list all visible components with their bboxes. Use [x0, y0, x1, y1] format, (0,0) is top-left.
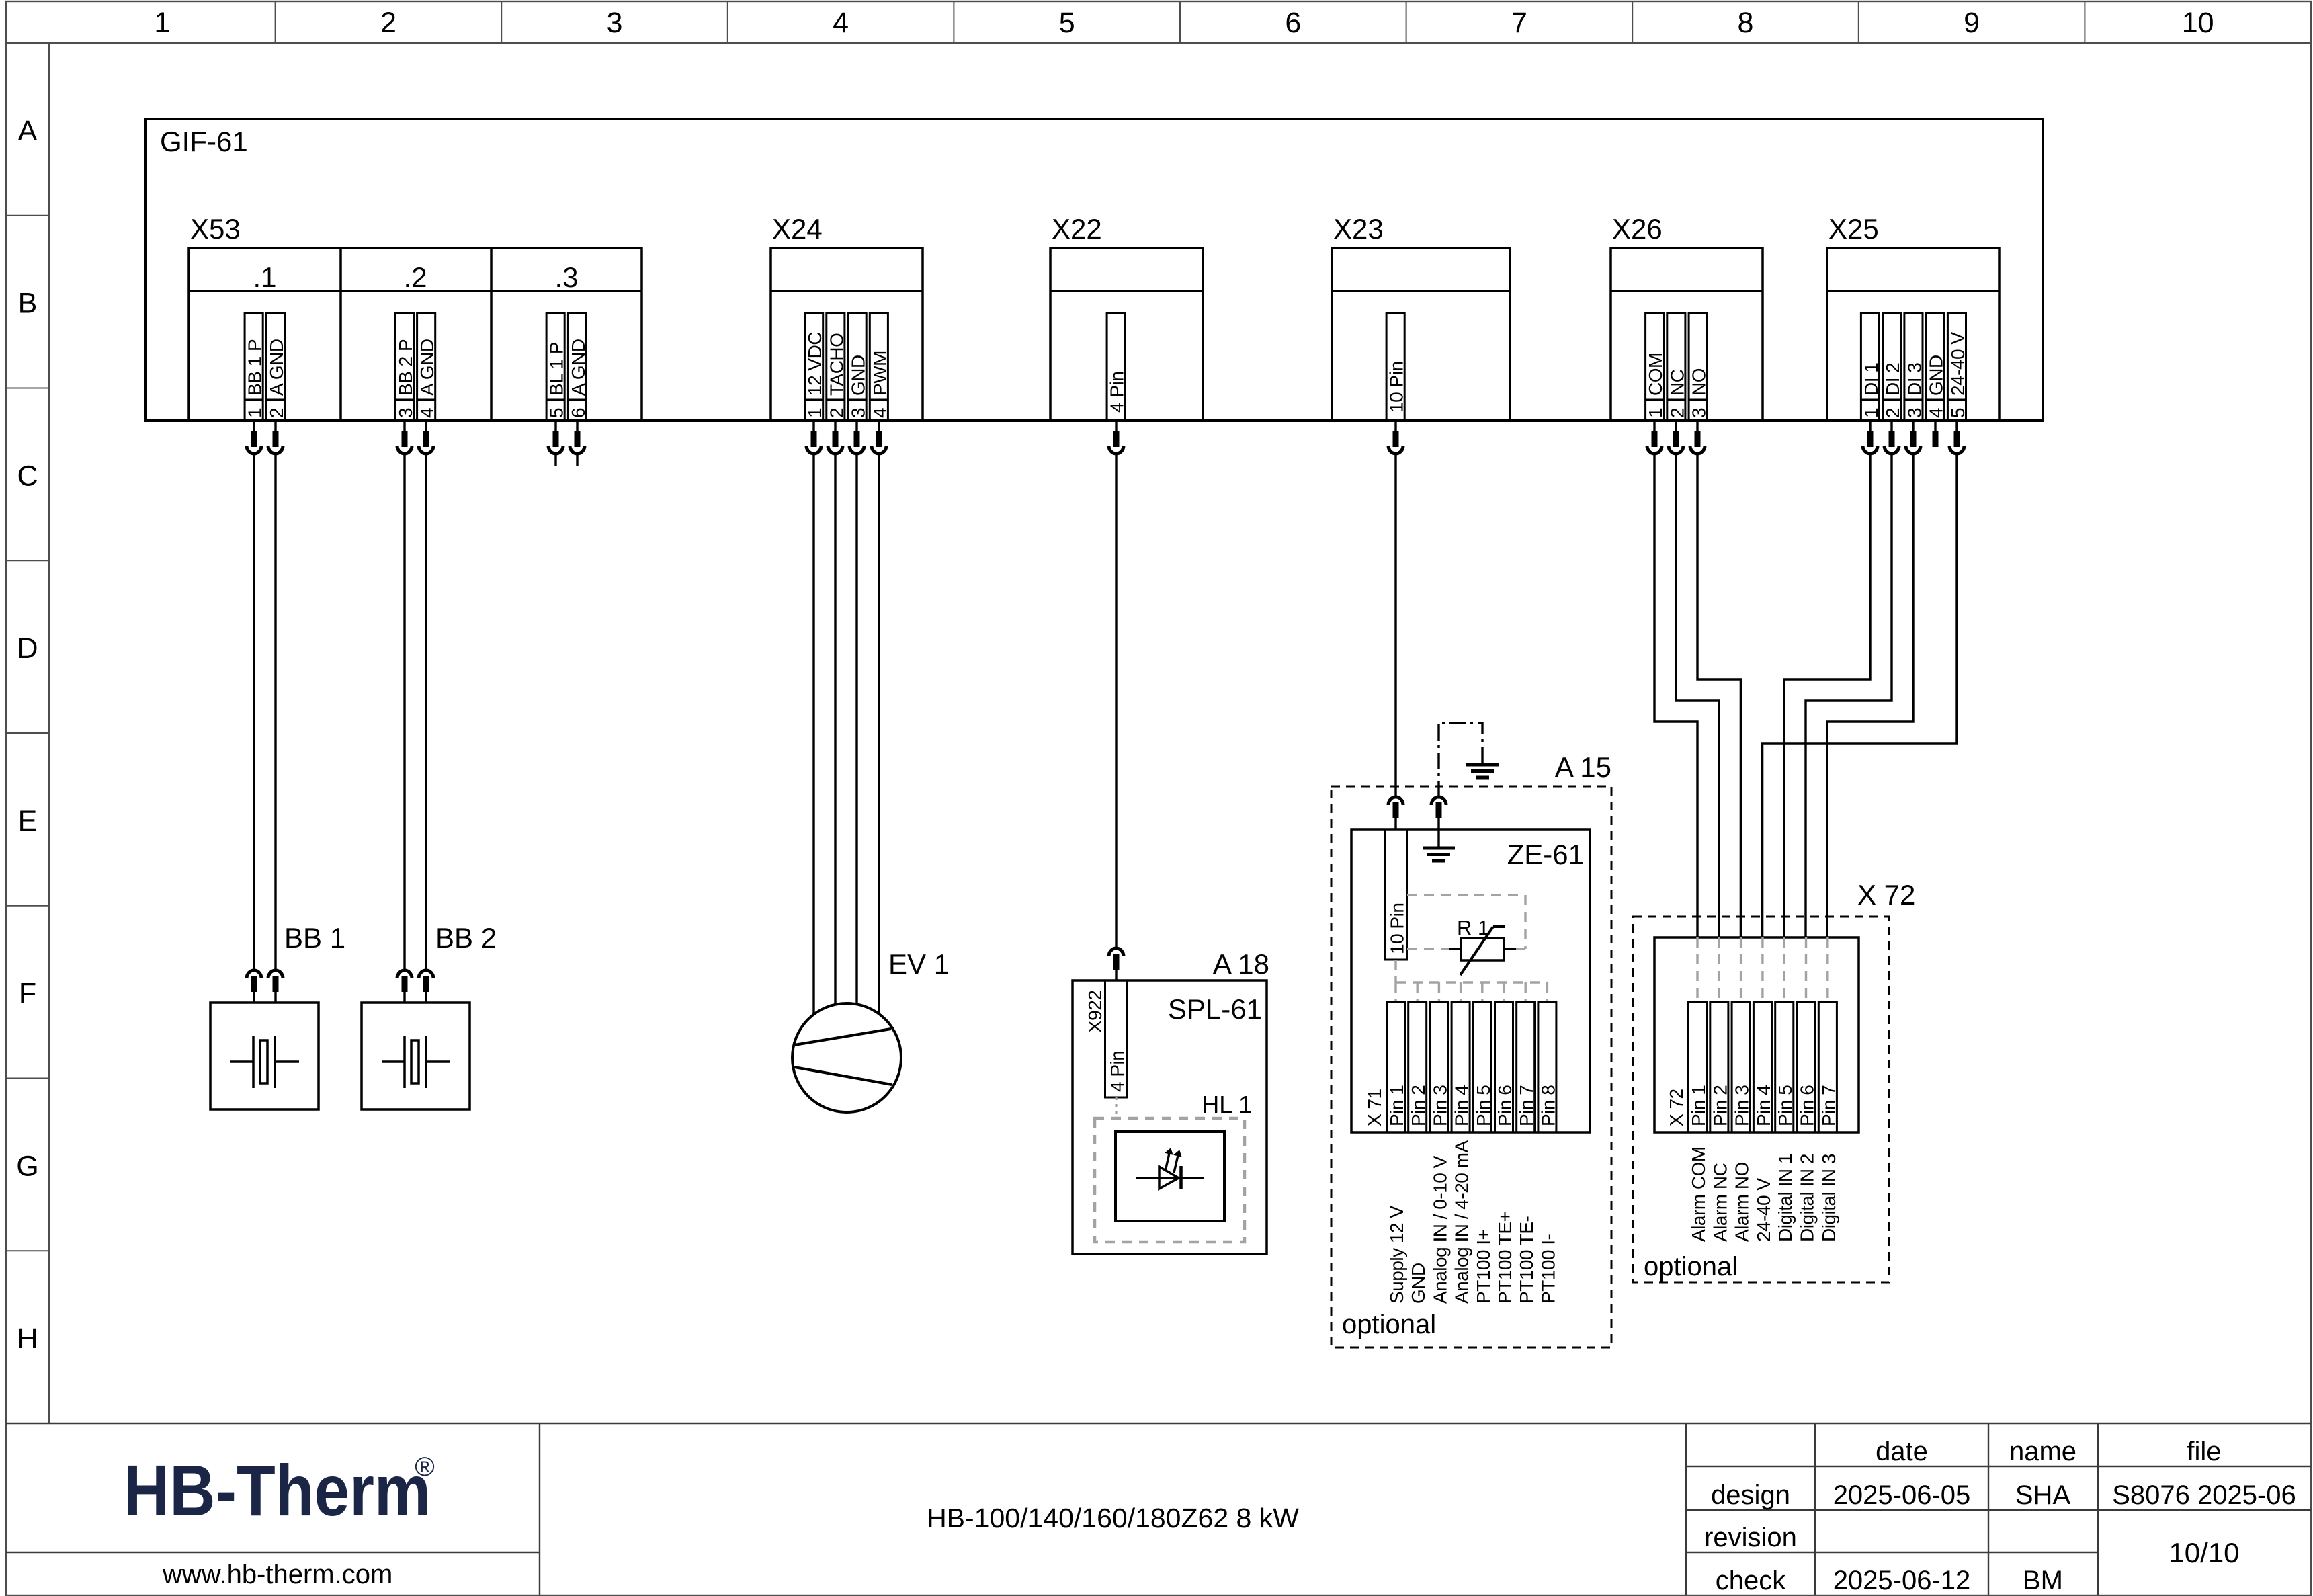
svg-text:date: date — [1876, 1437, 1928, 1466]
svg-text:check: check — [1716, 1566, 1786, 1595]
svg-text:X26: X26 — [1612, 213, 1663, 245]
svg-text:H: H — [17, 1322, 38, 1355]
svg-text:revision: revision — [1704, 1523, 1797, 1552]
svg-text:Pin 2: Pin 2 — [1710, 1085, 1730, 1126]
svg-text:PT100 I+: PT100 I+ — [1473, 1230, 1494, 1304]
svg-text:4 Pin: 4 Pin — [1107, 1051, 1128, 1092]
svg-text:BB 1 P: BB 1 P — [245, 339, 265, 396]
svg-text:design: design — [1711, 1480, 1790, 1510]
svg-text:S8076 2025-06: S8076 2025-06 — [2112, 1480, 2296, 1510]
svg-text:Alarm NO: Alarm NO — [1732, 1162, 1753, 1242]
svg-text:X 72: X 72 — [1857, 879, 1915, 911]
svg-text:GND: GND — [848, 355, 869, 396]
svg-text:5: 5 — [1059, 7, 1075, 39]
svg-text:NC: NC — [1667, 369, 1687, 396]
svg-text:F: F — [19, 978, 36, 1010]
svg-text:name: name — [2009, 1437, 2076, 1466]
svg-text:4: 4 — [870, 408, 890, 418]
svg-text:3: 3 — [848, 408, 869, 418]
svg-text:Pin 5: Pin 5 — [1775, 1085, 1796, 1126]
svg-text:4: 4 — [1926, 408, 1947, 418]
svg-text:Pin 1: Pin 1 — [1386, 1085, 1407, 1126]
svg-text:R 1: R 1 — [1457, 916, 1489, 939]
svg-text:Pin 2: Pin 2 — [1408, 1085, 1429, 1126]
svg-text:PT100 TE-: PT100 TE- — [1516, 1216, 1537, 1304]
svg-text:Pin 7: Pin 7 — [1818, 1085, 1839, 1126]
svg-text:PT100 TE+: PT100 TE+ — [1495, 1212, 1515, 1304]
svg-text:SHA: SHA — [2015, 1480, 2071, 1510]
svg-text:6: 6 — [568, 408, 589, 418]
svg-text:1: 1 — [1645, 408, 1666, 418]
svg-text:G: G — [16, 1150, 38, 1183]
svg-text:Pin 3: Pin 3 — [1732, 1085, 1753, 1126]
svg-text:Pin 7: Pin 7 — [1516, 1085, 1537, 1126]
svg-text:EV 1: EV 1 — [888, 948, 950, 980]
svg-text:Pin 8: Pin 8 — [1538, 1085, 1558, 1126]
svg-text:D: D — [17, 632, 38, 665]
svg-text:Analog IN / 0-10 V: Analog IN / 0-10 V — [1429, 1155, 1450, 1304]
svg-text:Digital IN 1: Digital IN 1 — [1775, 1154, 1796, 1242]
svg-text:optional: optional — [1644, 1252, 1738, 1282]
svg-text:2: 2 — [266, 408, 287, 418]
svg-text:Digital IN 2: Digital IN 2 — [1797, 1154, 1818, 1242]
svg-text:Pin 6: Pin 6 — [1797, 1085, 1818, 1126]
svg-text:Pin 6: Pin 6 — [1495, 1085, 1515, 1126]
svg-text:C: C — [17, 460, 38, 493]
svg-text:A 18: A 18 — [1213, 948, 1269, 980]
svg-text:X24: X24 — [772, 213, 823, 245]
svg-text:2025-06-05: 2025-06-05 — [1833, 1480, 1971, 1510]
svg-text:Supply 12 V: Supply 12 V — [1386, 1206, 1407, 1304]
svg-text:GND: GND — [1408, 1263, 1429, 1304]
svg-text:E: E — [18, 805, 38, 837]
svg-text:X 71: X 71 — [1364, 1089, 1385, 1126]
svg-text:2: 2 — [826, 408, 847, 418]
svg-text:10: 10 — [2182, 7, 2214, 39]
svg-text:Pin 4: Pin 4 — [1452, 1085, 1472, 1126]
svg-text:.3: .3 — [554, 261, 578, 293]
svg-text:2: 2 — [1667, 408, 1687, 418]
svg-text:®: ® — [415, 1452, 434, 1482]
svg-text:3: 3 — [1689, 408, 1710, 418]
svg-text:Alarm NC: Alarm NC — [1710, 1163, 1730, 1242]
svg-text:B: B — [18, 288, 38, 320]
svg-text:BB 1: BB 1 — [284, 922, 345, 954]
svg-text:24-40 V: 24-40 V — [1753, 1178, 1774, 1242]
svg-text:Alarm COM: Alarm COM — [1688, 1146, 1709, 1242]
svg-text:A: A — [18, 115, 38, 147]
svg-text:BB 2 P: BB 2 P — [395, 339, 416, 396]
svg-text:TACHO: TACHO — [826, 333, 847, 396]
svg-text:X53: X53 — [190, 213, 241, 245]
svg-text:PWM: PWM — [870, 351, 890, 396]
svg-text:GIF-61: GIF-61 — [160, 126, 248, 157]
svg-text:3: 3 — [607, 7, 623, 39]
svg-text:NO: NO — [1689, 368, 1710, 396]
svg-text:2025-06-12: 2025-06-12 — [1833, 1566, 1971, 1595]
svg-text:DI 2: DI 2 — [1882, 363, 1903, 396]
svg-text:www.hb-therm.com: www.hb-therm.com — [162, 1560, 392, 1589]
svg-text:2: 2 — [1882, 408, 1903, 418]
svg-text:BL 1 P: BL 1 P — [546, 342, 567, 396]
svg-text:optional: optional — [1342, 1310, 1436, 1339]
svg-text:BB 2: BB 2 — [435, 922, 497, 954]
svg-text:Pin 5: Pin 5 — [1473, 1085, 1494, 1126]
svg-text:10 Pin: 10 Pin — [1387, 903, 1408, 954]
svg-text:1: 1 — [245, 408, 265, 418]
svg-text:.2: .2 — [403, 261, 427, 293]
svg-text:24-40 V: 24-40 V — [1947, 332, 1968, 396]
svg-text:Digital IN 3: Digital IN 3 — [1818, 1154, 1839, 1242]
svg-text:HL 1: HL 1 — [1202, 1091, 1252, 1118]
svg-text:HB-100/140/160/180Z62 8 kW: HB-100/140/160/180Z62 8 kW — [927, 1503, 1299, 1534]
svg-text:6: 6 — [1285, 7, 1301, 39]
svg-text:BM: BM — [2023, 1566, 2063, 1595]
svg-text:SPL-61: SPL-61 — [1168, 993, 1262, 1025]
svg-text:X25: X25 — [1828, 213, 1879, 245]
svg-text:DI 3: DI 3 — [1904, 363, 1925, 396]
svg-text:7: 7 — [1511, 7, 1527, 39]
svg-text:DI 1: DI 1 — [1861, 363, 1882, 396]
svg-text:2: 2 — [380, 7, 396, 39]
svg-text:10/10: 10/10 — [2169, 1537, 2239, 1568]
svg-text:.1: .1 — [253, 261, 276, 293]
svg-text:A GND: A GND — [266, 339, 287, 396]
svg-text:5: 5 — [1947, 408, 1968, 418]
svg-text:4 Pin: 4 Pin — [1107, 372, 1128, 413]
svg-text:Pin 3: Pin 3 — [1429, 1085, 1450, 1126]
svg-text:3: 3 — [395, 408, 416, 418]
svg-text:X23: X23 — [1333, 213, 1384, 245]
svg-text:X 72: X 72 — [1666, 1089, 1687, 1126]
svg-text:X22: X22 — [1052, 213, 1102, 245]
svg-text:Analog IN / 4-20 mA: Analog IN / 4-20 mA — [1452, 1140, 1472, 1304]
svg-text:9: 9 — [1964, 7, 1980, 39]
svg-text:1: 1 — [804, 408, 825, 418]
svg-text:PT100 I-: PT100 I- — [1538, 1234, 1558, 1304]
svg-text:A GND: A GND — [568, 339, 589, 396]
svg-text:A 15: A 15 — [1555, 751, 1611, 783]
svg-text:A GND: A GND — [417, 339, 437, 396]
svg-text:4: 4 — [417, 408, 437, 418]
svg-text:3: 3 — [1904, 408, 1925, 418]
svg-text:ZE-61: ZE-61 — [1507, 839, 1584, 870]
svg-text:Pin 1: Pin 1 — [1688, 1085, 1709, 1126]
svg-text:HB-Therm: HB-Therm — [124, 1450, 431, 1531]
svg-text:8: 8 — [1738, 7, 1754, 39]
svg-text:COM: COM — [1645, 353, 1666, 396]
svg-text:12 VDC: 12 VDC — [804, 332, 825, 396]
svg-text:X922: X922 — [1085, 991, 1105, 1033]
svg-text:GND: GND — [1926, 355, 1947, 396]
svg-text:1: 1 — [154, 7, 170, 39]
svg-text:file: file — [2187, 1437, 2221, 1466]
svg-text:1: 1 — [1861, 408, 1882, 418]
svg-text:Pin 4: Pin 4 — [1753, 1085, 1774, 1126]
svg-text:5: 5 — [546, 408, 567, 418]
svg-text:10 Pin: 10 Pin — [1386, 362, 1407, 413]
svg-text:4: 4 — [833, 7, 849, 39]
